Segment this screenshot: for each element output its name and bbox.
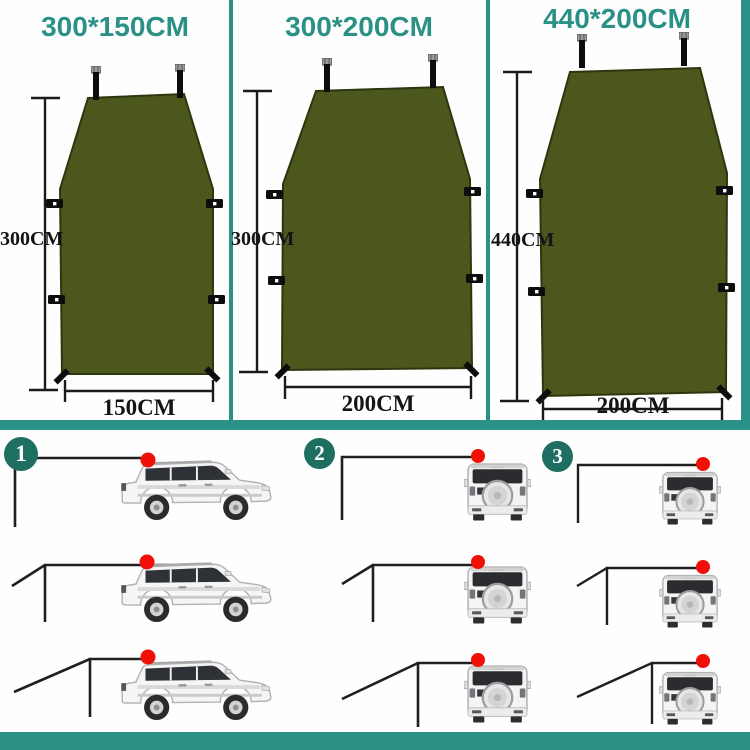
tie-tab-icon (46, 199, 63, 208)
tie-tab-icon (48, 295, 65, 304)
setup-number-badge-3: 3 (542, 441, 573, 472)
height-dimension-label: 300CM (231, 228, 294, 251)
suv-rear-image (464, 666, 531, 722)
awning-frame (342, 457, 478, 727)
tie-tab-icon (526, 189, 543, 198)
suv-rear-image (464, 567, 531, 623)
suv-rear-image (464, 464, 531, 520)
tie-tab-icon (464, 187, 481, 196)
tie-tab-icon (206, 199, 223, 208)
tarp-diagram-3 (500, 32, 735, 420)
tie-tab-icon (268, 276, 285, 285)
suv-side-image (121, 661, 271, 720)
width-dimension-label: 150CM (89, 395, 189, 421)
tarp-pole-icon (428, 54, 438, 88)
tie-tab-icon (718, 283, 735, 292)
setup-number-badge-2: 2 (304, 438, 335, 469)
width-dimension-label: 200CM (583, 393, 683, 419)
width-dimension-label: 200CM (328, 391, 428, 417)
tarp-shape (282, 87, 472, 370)
suv-rear-image (659, 673, 721, 725)
tarp-pole-icon (679, 32, 689, 66)
tarp-shape (540, 68, 727, 396)
diagram-graphics (0, 0, 750, 750)
suv-side-image (121, 461, 271, 520)
suv-rear-image (659, 576, 721, 628)
height-dimension-label: 440CM (491, 229, 554, 252)
suv-side-image (121, 563, 271, 622)
tarp-diagram-2 (239, 54, 483, 399)
tie-tab-icon (528, 287, 545, 296)
tie-tab-icon (716, 186, 733, 195)
height-dimension-label: 300CM (0, 228, 63, 251)
tarp-pole-icon (91, 66, 101, 100)
tarp-pole-icon (175, 64, 185, 98)
tarp-pole-icon (322, 58, 332, 92)
tarp-pole-icon (577, 34, 587, 68)
panel-title-size-3: 440*200CM (492, 3, 742, 35)
tie-tab-icon (208, 295, 225, 304)
panel-title-size-2: 300*200CM (232, 11, 486, 43)
setup-number-badge-1: 1 (4, 437, 38, 471)
product-infographic: 300*150CM 300*200CM 440*200CM 300CM 300C… (0, 0, 750, 750)
tarp-shape (60, 94, 213, 374)
tie-tab-icon (466, 274, 483, 283)
suv-rear-image (659, 473, 721, 525)
panel-title-size-1: 300*150CM (0, 11, 230, 43)
tie-tab-icon (266, 190, 283, 199)
